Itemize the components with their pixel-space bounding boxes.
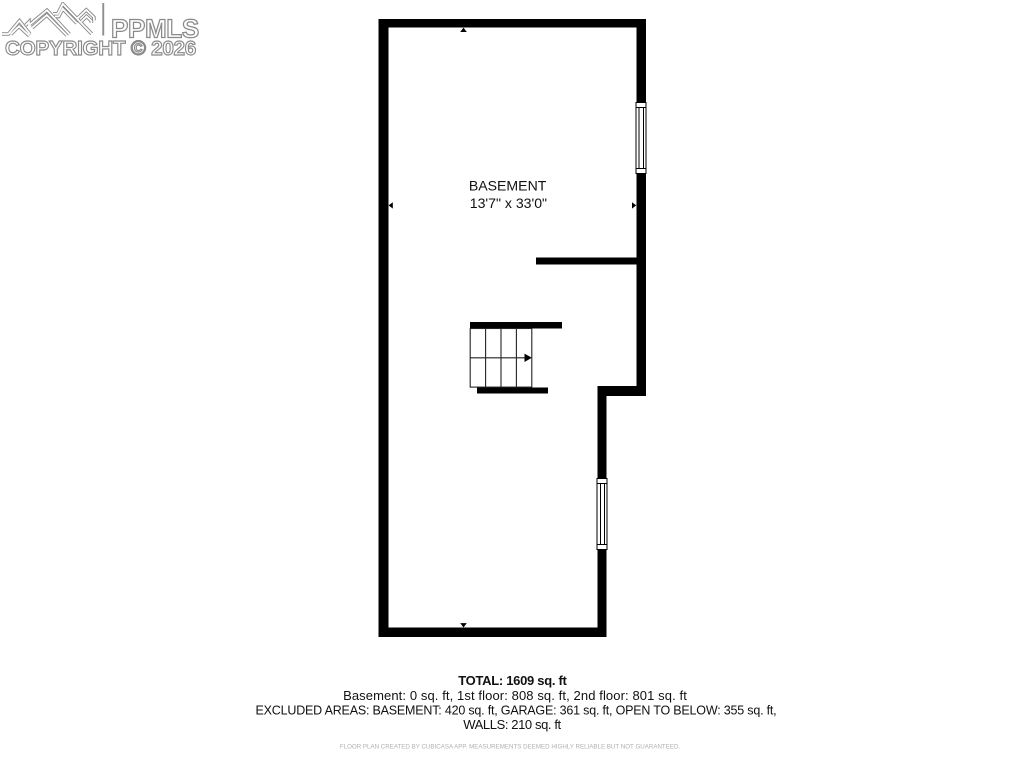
svg-text:COPYRIGHT © 2026: COPYRIGHT © 2026 <box>5 37 196 60</box>
svg-text:EXCLUDED AREAS: BASEMENT: 420: EXCLUDED AREAS: BASEMENT: 420 sq. ft, GA… <box>256 704 777 718</box>
svg-text:TOTAL: 1609 sq. ft: TOTAL: 1609 sq. ft <box>458 673 567 688</box>
svg-text:13'7" x 33'0": 13'7" x 33'0" <box>470 195 547 211</box>
svg-text:WALLS: 210 sq. ft: WALLS: 210 sq. ft <box>463 717 561 732</box>
svg-text:Basement: 0 sq. ft, 1st floor:: Basement: 0 sq. ft, 1st floor: 808 sq. f… <box>343 688 687 703</box>
svg-text:FLOOR PLAN CREATED BY CUBICASA: FLOOR PLAN CREATED BY CUBICASA APP. MEAS… <box>340 743 681 750</box>
svg-text:BASEMENT: BASEMENT <box>469 177 547 193</box>
